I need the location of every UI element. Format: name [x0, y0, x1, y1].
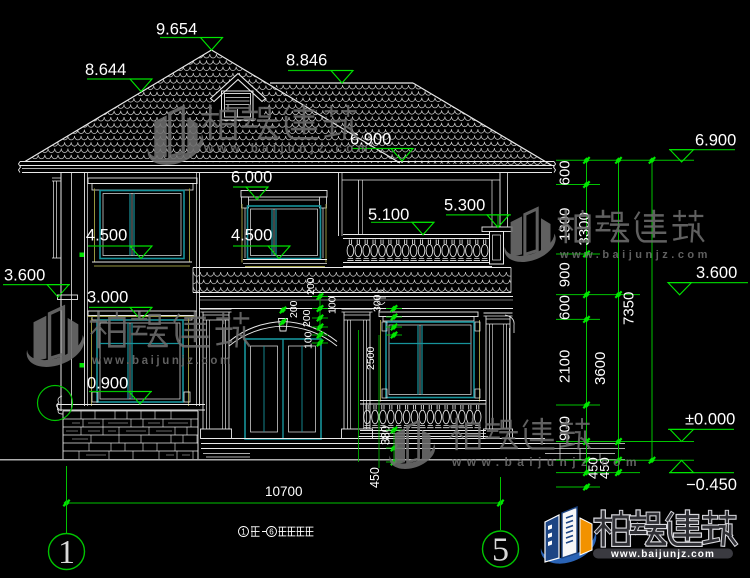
svg-text:www.baijunjz.com: www.baijunjz.com [559, 249, 711, 261]
svg-text:4.500: 4.500 [86, 227, 127, 245]
svg-text:100: 100 [303, 331, 315, 349]
svg-text:100: 100 [327, 296, 339, 314]
svg-text:3600: 3600 [592, 352, 609, 385]
svg-text:www.baijunjz.com: www.baijunjz.com [91, 355, 233, 367]
svg-text:6.000: 6.000 [231, 169, 272, 187]
svg-text:8.644: 8.644 [85, 61, 126, 79]
svg-text:3.000: 3.000 [87, 289, 128, 307]
svg-text:1: 1 [58, 534, 75, 571]
svg-text:2100: 2100 [557, 350, 574, 383]
svg-text:450: 450 [368, 467, 382, 488]
svg-text:www.baijunjz.com: www.baijunjz.com [610, 549, 715, 560]
svg-text:200: 200 [301, 309, 313, 327]
svg-text:0.900: 0.900 [87, 375, 128, 393]
svg-text:5.300: 5.300 [444, 197, 485, 215]
svg-text:1: 1 [241, 528, 246, 537]
svg-text:−0.450: −0.450 [686, 476, 737, 494]
svg-text:6.900: 6.900 [695, 132, 736, 150]
svg-text:9.654: 9.654 [156, 21, 197, 39]
svg-text:www.baijunjz.com: www.baijunjz.com [203, 143, 372, 155]
svg-text:600: 600 [557, 295, 574, 320]
svg-text:6: 6 [269, 528, 274, 537]
svg-text:3.600: 3.600 [696, 264, 737, 282]
svg-text:±0.000: ±0.000 [685, 411, 735, 429]
svg-text:300: 300 [372, 294, 384, 312]
svg-text:2500: 2500 [365, 346, 377, 370]
svg-text:7350: 7350 [621, 292, 638, 325]
svg-text:200: 200 [288, 300, 300, 318]
svg-text:200: 200 [305, 277, 317, 295]
svg-text:380: 380 [381, 426, 393, 445]
svg-text:900: 900 [557, 416, 574, 441]
svg-text:www.baijunjz.com: www.baijunjz.com [451, 455, 642, 469]
svg-text:10700: 10700 [265, 484, 303, 499]
svg-text:600: 600 [557, 160, 574, 185]
svg-text:8.846: 8.846 [286, 52, 327, 70]
svg-text:3.600: 3.600 [4, 267, 45, 285]
svg-text:5: 5 [492, 532, 509, 569]
svg-text:5.100: 5.100 [368, 206, 409, 224]
svg-text:4.500: 4.500 [231, 227, 272, 245]
svg-text:900: 900 [557, 262, 574, 287]
